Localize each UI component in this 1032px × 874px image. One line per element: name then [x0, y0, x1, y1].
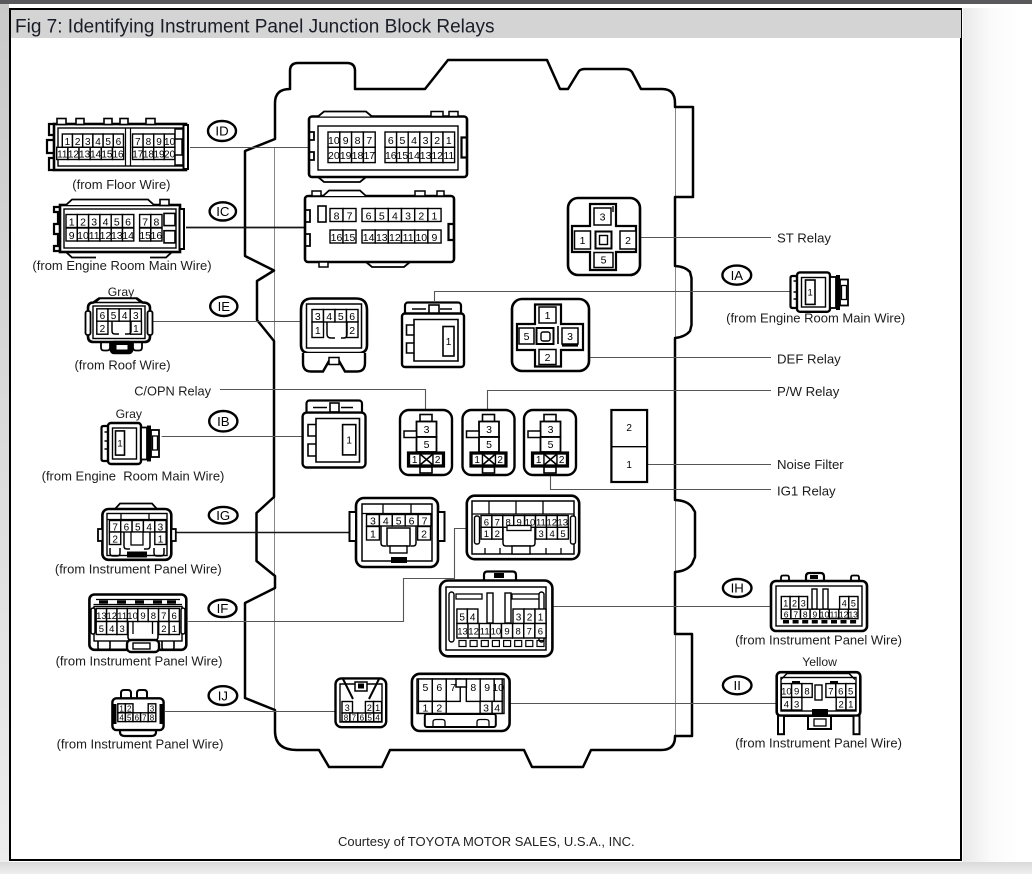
- svg-text:7: 7: [366, 135, 372, 147]
- svg-text:1: 1: [580, 235, 586, 247]
- svg-text:9: 9: [69, 230, 75, 242]
- svg-text:Fig 7: Identifying Instrument: Fig 7: Identifying Instrument Panel Junc…: [15, 17, 494, 38]
- svg-text:10: 10: [77, 230, 89, 242]
- svg-text:2: 2: [367, 703, 372, 713]
- svg-text:3: 3: [91, 216, 97, 228]
- svg-text:5: 5: [127, 714, 132, 723]
- svg-text:1: 1: [117, 439, 122, 450]
- svg-text:1: 1: [446, 337, 452, 348]
- svg-text:2: 2: [434, 135, 440, 147]
- svg-text:11: 11: [443, 150, 454, 162]
- svg-text:9: 9: [794, 686, 799, 697]
- svg-text:8: 8: [344, 714, 349, 723]
- svg-text:7: 7: [352, 714, 357, 723]
- svg-text:8: 8: [804, 686, 809, 697]
- svg-text:4: 4: [411, 135, 417, 147]
- svg-text:(from Instrument Panel Wire): (from Instrument Panel Wire): [735, 633, 902, 648]
- svg-text:2: 2: [161, 624, 166, 635]
- svg-text:14: 14: [122, 230, 134, 242]
- svg-text:2: 2: [497, 455, 503, 466]
- svg-text:3: 3: [548, 424, 554, 436]
- svg-text:1: 1: [69, 216, 75, 228]
- svg-text:3: 3: [600, 212, 606, 224]
- svg-text:12: 12: [107, 611, 118, 622]
- svg-text:2: 2: [418, 210, 424, 222]
- svg-text:6: 6: [538, 627, 543, 638]
- svg-text:IG1 Relay: IG1 Relay: [777, 484, 836, 499]
- svg-text:7: 7: [422, 516, 428, 528]
- svg-text:1: 1: [133, 324, 139, 335]
- svg-text:9: 9: [504, 627, 509, 638]
- svg-text:IC: IC: [216, 204, 230, 219]
- svg-text:Yellow: Yellow: [802, 655, 837, 669]
- svg-text:11: 11: [830, 610, 839, 620]
- svg-text:5: 5: [379, 210, 385, 222]
- svg-text:12: 12: [68, 150, 80, 161]
- svg-text:5: 5: [105, 137, 111, 148]
- svg-text:5: 5: [399, 135, 405, 147]
- svg-text:19: 19: [340, 150, 352, 162]
- svg-text:17: 17: [363, 150, 375, 162]
- svg-text:4: 4: [95, 137, 101, 148]
- svg-text:3: 3: [516, 612, 522, 623]
- svg-text:IJ: IJ: [218, 688, 228, 703]
- svg-text:8: 8: [516, 627, 521, 638]
- svg-text:3: 3: [85, 137, 91, 148]
- svg-text:7: 7: [347, 210, 353, 222]
- svg-text:7: 7: [793, 610, 798, 620]
- svg-text:1: 1: [848, 700, 853, 711]
- svg-text:16: 16: [331, 232, 343, 244]
- svg-text:8: 8: [150, 714, 155, 723]
- svg-text:(from Floor Wire): (from Floor Wire): [72, 177, 170, 192]
- svg-text:4: 4: [375, 714, 380, 723]
- svg-text:5: 5: [424, 439, 430, 451]
- svg-text:1: 1: [545, 310, 551, 322]
- svg-text:IA: IA: [731, 268, 744, 283]
- svg-text:4: 4: [103, 216, 109, 228]
- svg-text:2: 2: [75, 137, 81, 148]
- svg-text:3: 3: [423, 135, 429, 147]
- svg-text:4: 4: [326, 311, 332, 323]
- svg-text:11: 11: [403, 232, 414, 244]
- svg-text:3: 3: [345, 703, 350, 713]
- svg-text:3: 3: [483, 703, 489, 715]
- svg-text:4: 4: [119, 714, 124, 723]
- svg-text:10: 10: [492, 682, 504, 694]
- svg-text:13: 13: [376, 232, 388, 244]
- svg-text:5: 5: [524, 331, 530, 343]
- svg-text:10: 10: [820, 610, 830, 620]
- svg-text:1: 1: [412, 455, 418, 466]
- svg-text:(from Engine Room Main Wire): (from Engine Room Main Wire): [726, 311, 905, 326]
- svg-text:1: 1: [158, 534, 164, 545]
- svg-text:3: 3: [405, 210, 411, 222]
- svg-text:14: 14: [90, 150, 102, 161]
- svg-text:II: II: [734, 678, 741, 693]
- svg-text:11: 11: [480, 627, 490, 638]
- svg-text:1: 1: [446, 135, 452, 147]
- svg-text:(from Roof Wire): (from Roof Wire): [74, 358, 170, 373]
- svg-text:IE: IE: [218, 299, 231, 314]
- svg-text:(from Instrument Panel Wire): (from Instrument Panel Wire): [55, 562, 222, 577]
- svg-text:10: 10: [491, 627, 502, 638]
- svg-text:3: 3: [567, 331, 573, 343]
- svg-text:8: 8: [151, 611, 156, 622]
- svg-text:IH: IH: [731, 581, 744, 596]
- svg-text:ID: ID: [215, 124, 228, 139]
- svg-text:4: 4: [109, 624, 114, 635]
- svg-text:6: 6: [838, 686, 843, 697]
- svg-text:1: 1: [346, 436, 352, 447]
- svg-text:Courtesy of TOYOTA MOTOR SALES: Courtesy of TOYOTA MOTOR SALES, U.S.A., …: [338, 834, 635, 849]
- svg-text:6: 6: [784, 610, 789, 620]
- svg-text:13: 13: [848, 610, 858, 620]
- svg-text:4: 4: [122, 311, 128, 322]
- svg-text:2: 2: [349, 325, 355, 337]
- svg-text:12: 12: [389, 232, 401, 244]
- svg-text:12: 12: [839, 610, 849, 620]
- svg-text:7: 7: [828, 686, 833, 697]
- svg-text:14: 14: [408, 150, 420, 162]
- svg-text:ST Relay: ST Relay: [777, 231, 831, 246]
- svg-text:6: 6: [436, 682, 442, 694]
- svg-text:IF: IF: [217, 601, 229, 616]
- svg-text:9: 9: [484, 682, 490, 694]
- svg-text:5: 5: [396, 516, 402, 528]
- svg-text:4: 4: [392, 210, 398, 222]
- svg-text:Noise Filter: Noise Filter: [777, 457, 844, 472]
- svg-text:2: 2: [545, 352, 551, 364]
- svg-text:4: 4: [784, 700, 789, 711]
- svg-text:2: 2: [435, 455, 441, 466]
- svg-text:Gray: Gray: [116, 407, 143, 421]
- svg-text:6: 6: [349, 311, 355, 323]
- svg-text:(from Instrument Panel Wire): (from Instrument Panel Wire): [735, 736, 902, 751]
- svg-text:3: 3: [486, 424, 492, 436]
- svg-text:2: 2: [421, 529, 427, 541]
- svg-text:9: 9: [140, 611, 145, 622]
- svg-text:16: 16: [112, 150, 124, 161]
- svg-text:3: 3: [424, 424, 430, 436]
- svg-text:20: 20: [164, 150, 176, 161]
- svg-text:5: 5: [848, 686, 853, 697]
- svg-text:13: 13: [79, 150, 91, 161]
- svg-text:IG: IG: [216, 508, 230, 523]
- svg-text:6: 6: [360, 714, 365, 723]
- svg-text:3: 3: [801, 599, 806, 609]
- svg-text:IB: IB: [217, 414, 230, 429]
- svg-text:10: 10: [328, 135, 340, 147]
- svg-text:1: 1: [474, 455, 480, 466]
- svg-text:7: 7: [161, 611, 166, 622]
- svg-text:5: 5: [459, 612, 465, 623]
- svg-text:12: 12: [100, 230, 112, 242]
- svg-text:8: 8: [355, 135, 361, 147]
- svg-text:3: 3: [315, 311, 321, 323]
- svg-text:6: 6: [116, 137, 122, 148]
- svg-text:4: 4: [549, 529, 554, 540]
- svg-text:8: 8: [334, 210, 340, 222]
- svg-text:6: 6: [100, 311, 106, 322]
- svg-text:7: 7: [142, 714, 147, 723]
- svg-text:(from Engine Room Main Wire): (from Engine Room Main Wire): [32, 258, 211, 273]
- svg-text:1: 1: [315, 325, 321, 337]
- svg-text:2: 2: [626, 423, 632, 434]
- svg-text:1: 1: [484, 529, 489, 540]
- svg-text:1: 1: [375, 703, 380, 713]
- svg-text:2: 2: [495, 529, 500, 540]
- svg-text:12: 12: [431, 150, 443, 162]
- svg-text:2: 2: [112, 534, 118, 545]
- svg-text:4: 4: [470, 612, 476, 623]
- svg-text:1: 1: [431, 210, 437, 222]
- svg-text:5: 5: [367, 714, 372, 723]
- svg-text:2: 2: [436, 703, 442, 715]
- svg-text:9: 9: [431, 232, 437, 244]
- svg-text:3: 3: [120, 624, 125, 635]
- svg-text:11: 11: [57, 150, 68, 161]
- svg-text:3: 3: [794, 700, 799, 711]
- svg-text:9: 9: [813, 610, 818, 620]
- svg-text:5: 5: [338, 311, 344, 323]
- svg-text:8: 8: [803, 610, 808, 620]
- svg-text:8: 8: [153, 216, 159, 228]
- svg-text:7: 7: [135, 137, 141, 148]
- svg-text:P/W Relay: P/W Relay: [777, 384, 840, 399]
- svg-text:5: 5: [486, 439, 492, 451]
- svg-text:4: 4: [494, 703, 500, 715]
- svg-text:3: 3: [539, 529, 544, 540]
- svg-text:16: 16: [151, 230, 163, 242]
- svg-text:18: 18: [352, 150, 364, 162]
- svg-text:5: 5: [422, 682, 428, 694]
- svg-text:DEF Relay: DEF Relay: [777, 352, 841, 367]
- svg-text:2: 2: [559, 455, 565, 466]
- svg-text:10: 10: [127, 611, 138, 622]
- svg-text:6: 6: [172, 611, 177, 622]
- svg-text:C/OPN Relay: C/OPN Relay: [134, 384, 211, 399]
- svg-text:11: 11: [89, 230, 100, 242]
- svg-text:3: 3: [370, 516, 376, 528]
- svg-text:2: 2: [527, 612, 533, 623]
- svg-text:4: 4: [146, 522, 152, 533]
- svg-text:6: 6: [125, 216, 131, 228]
- svg-text:6: 6: [366, 210, 372, 222]
- svg-text:10: 10: [415, 232, 427, 244]
- svg-text:15: 15: [101, 150, 113, 161]
- svg-text:13: 13: [96, 611, 107, 622]
- svg-text:13: 13: [420, 150, 432, 162]
- svg-text:(from Instrument Panel Wire): (from Instrument Panel Wire): [57, 737, 224, 752]
- svg-text:6: 6: [124, 522, 130, 533]
- svg-text:2: 2: [625, 235, 631, 247]
- svg-text:(from Engine Room Main Wire): (from Engine Room Main Wire): [42, 469, 225, 484]
- svg-text:20: 20: [328, 150, 340, 162]
- svg-text:1: 1: [422, 703, 428, 715]
- svg-text:9: 9: [156, 137, 162, 148]
- svg-text:2: 2: [100, 324, 106, 335]
- svg-text:8: 8: [146, 137, 152, 148]
- svg-text:6: 6: [135, 714, 140, 723]
- svg-text:6: 6: [409, 516, 415, 528]
- svg-text:1: 1: [370, 529, 376, 541]
- svg-text:3: 3: [133, 311, 139, 322]
- svg-text:4: 4: [383, 516, 389, 528]
- svg-text:5: 5: [111, 311, 117, 322]
- svg-text:5: 5: [560, 529, 565, 540]
- svg-text:1: 1: [538, 612, 544, 623]
- svg-text:Gray: Gray: [108, 285, 135, 299]
- svg-text:15: 15: [397, 150, 409, 162]
- svg-text:1: 1: [65, 137, 71, 148]
- svg-text:7: 7: [527, 627, 532, 638]
- svg-text:5: 5: [601, 255, 607, 267]
- svg-text:7: 7: [142, 216, 148, 228]
- svg-text:5: 5: [851, 599, 856, 609]
- svg-text:15: 15: [344, 232, 356, 244]
- svg-text:1: 1: [783, 599, 788, 609]
- svg-text:16: 16: [385, 150, 397, 162]
- svg-text:5: 5: [99, 624, 104, 635]
- svg-text:1: 1: [536, 455, 542, 466]
- svg-text:12: 12: [468, 627, 479, 638]
- svg-text:13: 13: [457, 627, 468, 638]
- svg-text:5: 5: [114, 216, 120, 228]
- svg-text:2: 2: [80, 216, 86, 228]
- svg-text:14: 14: [363, 232, 375, 244]
- svg-text:1: 1: [626, 460, 632, 471]
- svg-text:10: 10: [781, 686, 792, 697]
- svg-text:9: 9: [343, 135, 349, 147]
- svg-text:11: 11: [117, 611, 127, 622]
- svg-text:15: 15: [139, 230, 151, 242]
- svg-text:13: 13: [111, 230, 123, 242]
- svg-text:1: 1: [808, 288, 813, 299]
- svg-text:6: 6: [388, 135, 394, 147]
- svg-text:5: 5: [548, 439, 554, 451]
- svg-text:2: 2: [838, 700, 843, 711]
- svg-text:2: 2: [792, 599, 797, 609]
- svg-text:10: 10: [164, 137, 176, 148]
- svg-text:(from Instrument Panel Wire): (from Instrument Panel Wire): [56, 654, 223, 669]
- svg-text:4: 4: [842, 599, 847, 609]
- svg-text:8: 8: [470, 682, 476, 694]
- svg-text:1: 1: [172, 624, 177, 635]
